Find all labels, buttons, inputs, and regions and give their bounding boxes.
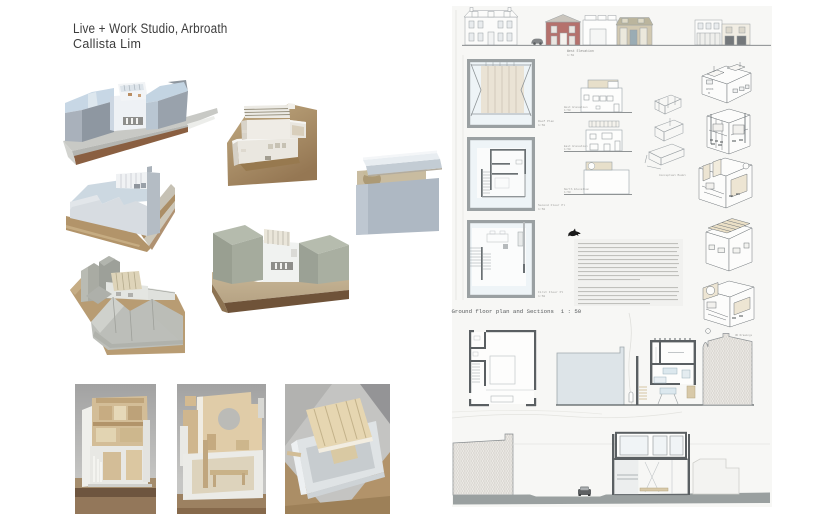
- svg-text:1:50: 1:50: [564, 148, 571, 151]
- svg-text:Second Floor Pl: Second Floor Pl: [538, 203, 565, 207]
- svg-text:Ground floor plan and Sections: Ground floor plan and Sections 1 : 50: [452, 308, 582, 315]
- svg-text:1:50: 1:50: [567, 54, 574, 57]
- svg-text:3D Drawings: 3D Drawings: [735, 333, 753, 337]
- svg-text:1:50: 1:50: [538, 295, 545, 298]
- svg-text:West Elevation: West Elevation: [567, 49, 594, 53]
- svg-text:1:50: 1:50: [564, 191, 571, 194]
- svg-text:Conceptual Model: Conceptual Model: [659, 173, 686, 177]
- svg-text:1:50: 1:50: [538, 208, 545, 211]
- svg-text:First Floor Pl: First Floor Pl: [538, 290, 563, 294]
- svg-text:WORK: WORK: [706, 88, 714, 91]
- svg-text:Roof Plan: Roof Plan: [538, 119, 554, 123]
- svg-text:1:50: 1:50: [564, 109, 571, 112]
- svg-text:1:50: 1:50: [538, 124, 545, 127]
